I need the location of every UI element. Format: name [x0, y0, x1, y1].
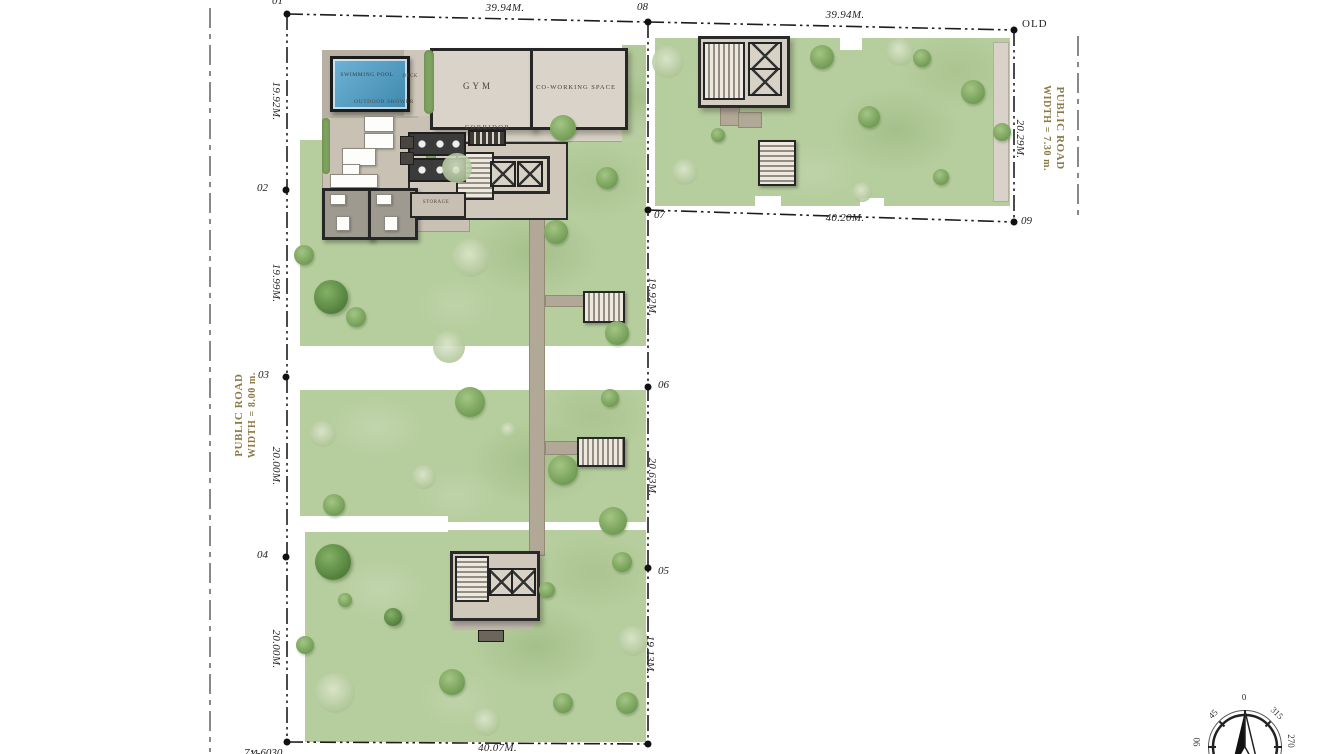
- boundary-point-label-07: 07: [654, 209, 665, 221]
- dimension-mid-3: 19.13M.: [644, 625, 656, 685]
- walkway-east-2: [738, 112, 762, 128]
- toilet-fixture-1: [330, 194, 346, 205]
- toilet-fixture-2: [336, 216, 350, 231]
- dimension-bottom-left: 40.07M.: [455, 742, 540, 754]
- elevator-east-2: [748, 68, 782, 96]
- dimension-left-1: 19.92M.: [270, 71, 282, 131]
- dimension-top-left: 39.94M.: [460, 2, 550, 14]
- walkway-stub-1: [545, 295, 585, 307]
- tree: [442, 153, 472, 183]
- corridor-bench: [468, 130, 506, 146]
- compass-rose: [1208, 710, 1282, 754]
- compass-label-w: 90: [1192, 731, 1202, 753]
- elevator-plot3-2: [511, 568, 536, 596]
- compass-label-ne: 315: [1266, 702, 1289, 725]
- tree: [315, 673, 355, 713]
- elevator-1: [490, 161, 516, 187]
- boundary-point-label-01: 01: [272, 0, 283, 7]
- room-label-gym: GYM: [428, 81, 528, 91]
- tree: [605, 321, 629, 345]
- road-label-west: PUBLIC ROAD WIDTH = 8.00 m.: [233, 335, 259, 495]
- tree: [612, 552, 632, 572]
- garden-stair-plot2: [577, 437, 625, 467]
- dimension-left-3: 20.00M.: [270, 436, 282, 496]
- room-label-deck: DECK: [399, 74, 421, 79]
- tree: [452, 239, 490, 277]
- stairs-plot3: [455, 556, 489, 602]
- dimension-left-2: 19.99M.: [270, 253, 282, 313]
- tree: [810, 45, 834, 69]
- tree: [858, 106, 880, 128]
- tree: [500, 422, 516, 438]
- tree: [711, 128, 725, 142]
- compass-needle-dark: [1230, 711, 1245, 754]
- room-label-storage: STORAGE: [412, 200, 460, 205]
- tree: [961, 80, 985, 104]
- tree: [310, 421, 336, 447]
- road-label-west-line2: WIDTH = 8.00 m.: [247, 335, 260, 495]
- room-label-corridor: CORRIDOR: [440, 124, 535, 131]
- toilet-fixture-3: [376, 194, 392, 205]
- sun-lounger-1: [364, 116, 394, 132]
- tree: [886, 38, 914, 66]
- planter-2: [400, 152, 414, 165]
- garden-stair-east-plot: [758, 140, 796, 186]
- dimension-mid-2: 20.63M.: [646, 447, 658, 507]
- tree: [933, 169, 949, 185]
- tree: [616, 692, 638, 714]
- road-label-east-line2: WIDTH = 7.30 m.: [1040, 48, 1053, 208]
- elevator-east-1: [748, 42, 782, 70]
- setback-gap: [298, 516, 448, 532]
- east-plot-notch-1: [840, 38, 862, 50]
- sun-lounger-2: [364, 133, 394, 149]
- hedge-2: [322, 118, 330, 174]
- tree: [338, 593, 352, 607]
- road-label-west-line1: PUBLIC ROAD: [233, 335, 247, 495]
- east-plot-notch-2: [755, 196, 781, 206]
- tree: [315, 544, 351, 580]
- storage-room: [410, 192, 466, 218]
- compass-label-n: 0: [1233, 691, 1256, 703]
- garden-stair-plot1: [583, 291, 625, 323]
- east-plot-edge-walk: [993, 42, 1009, 202]
- long-table: [330, 174, 378, 188]
- room-label-coworking: CO-WORKING SPACE: [528, 84, 624, 91]
- boundary-point-label-05: 05: [658, 565, 669, 577]
- dimension-right-1: 20.29M.: [1014, 109, 1026, 169]
- tree: [323, 494, 345, 516]
- boundary-point-label-08: 08: [637, 1, 648, 13]
- elevator-2: [517, 161, 543, 187]
- boundary-point-label-06: 06: [658, 379, 669, 391]
- tree: [384, 608, 402, 626]
- tree: [346, 307, 366, 327]
- tree: [294, 245, 314, 265]
- tree: [672, 159, 698, 185]
- room-label-pool: SWIMMING POOL: [332, 72, 402, 78]
- tree: [601, 389, 619, 407]
- tree: [852, 182, 872, 202]
- tree: [548, 455, 578, 485]
- planter-1: [400, 136, 414, 149]
- boundary-point-label-02: 02: [257, 182, 268, 194]
- stairs-east-plot: [703, 42, 745, 100]
- dimension-bottom-right: 40.20M.: [800, 212, 890, 224]
- boundary-point-label-04: 04: [257, 549, 268, 561]
- tree: [544, 220, 568, 244]
- core-plot3-step: [478, 630, 504, 642]
- tree: [599, 507, 627, 535]
- boundary-point-label-old: OLD: [1022, 18, 1048, 30]
- tree: [314, 280, 348, 314]
- boundary-point-label-09: 09: [1021, 215, 1032, 227]
- walkway-main: [529, 198, 545, 556]
- tree: [433, 331, 465, 363]
- dimension-left-4: 20.00M.: [270, 619, 282, 679]
- tree: [439, 669, 465, 695]
- boundary-point-label-03: 03: [258, 369, 269, 381]
- tree: [596, 167, 618, 189]
- room-label-shower: OUTDOOR SHOWER: [345, 99, 423, 105]
- toilet-fixture-4: [384, 216, 398, 231]
- survey-mark-label: 7ท-6030: [244, 743, 282, 754]
- dimension-top-right: 39.94M.: [800, 9, 890, 21]
- tree: [550, 115, 576, 141]
- compass-label-nw: 45: [1202, 703, 1225, 726]
- road-label-east: PUBLIC ROAD WIDTH = 7.30 m.: [1040, 48, 1066, 208]
- site-plan-drawing: 01 02 03 04 05 06 07 08 09 OLD 7ท-6030 3…: [0, 0, 1342, 754]
- tree: [993, 123, 1011, 141]
- tree: [553, 693, 573, 713]
- compass-needle-light: [1245, 711, 1260, 754]
- tree: [652, 46, 684, 78]
- tree: [455, 387, 485, 417]
- tree: [913, 49, 931, 67]
- tree: [472, 708, 500, 736]
- tree: [412, 465, 436, 489]
- road-label-east-line1: PUBLIC ROAD: [1052, 48, 1066, 208]
- dimension-mid-1: 19.92M.: [646, 267, 658, 327]
- compass-label-e: 270: [1286, 730, 1296, 752]
- tree: [539, 582, 555, 598]
- tree: [296, 636, 314, 654]
